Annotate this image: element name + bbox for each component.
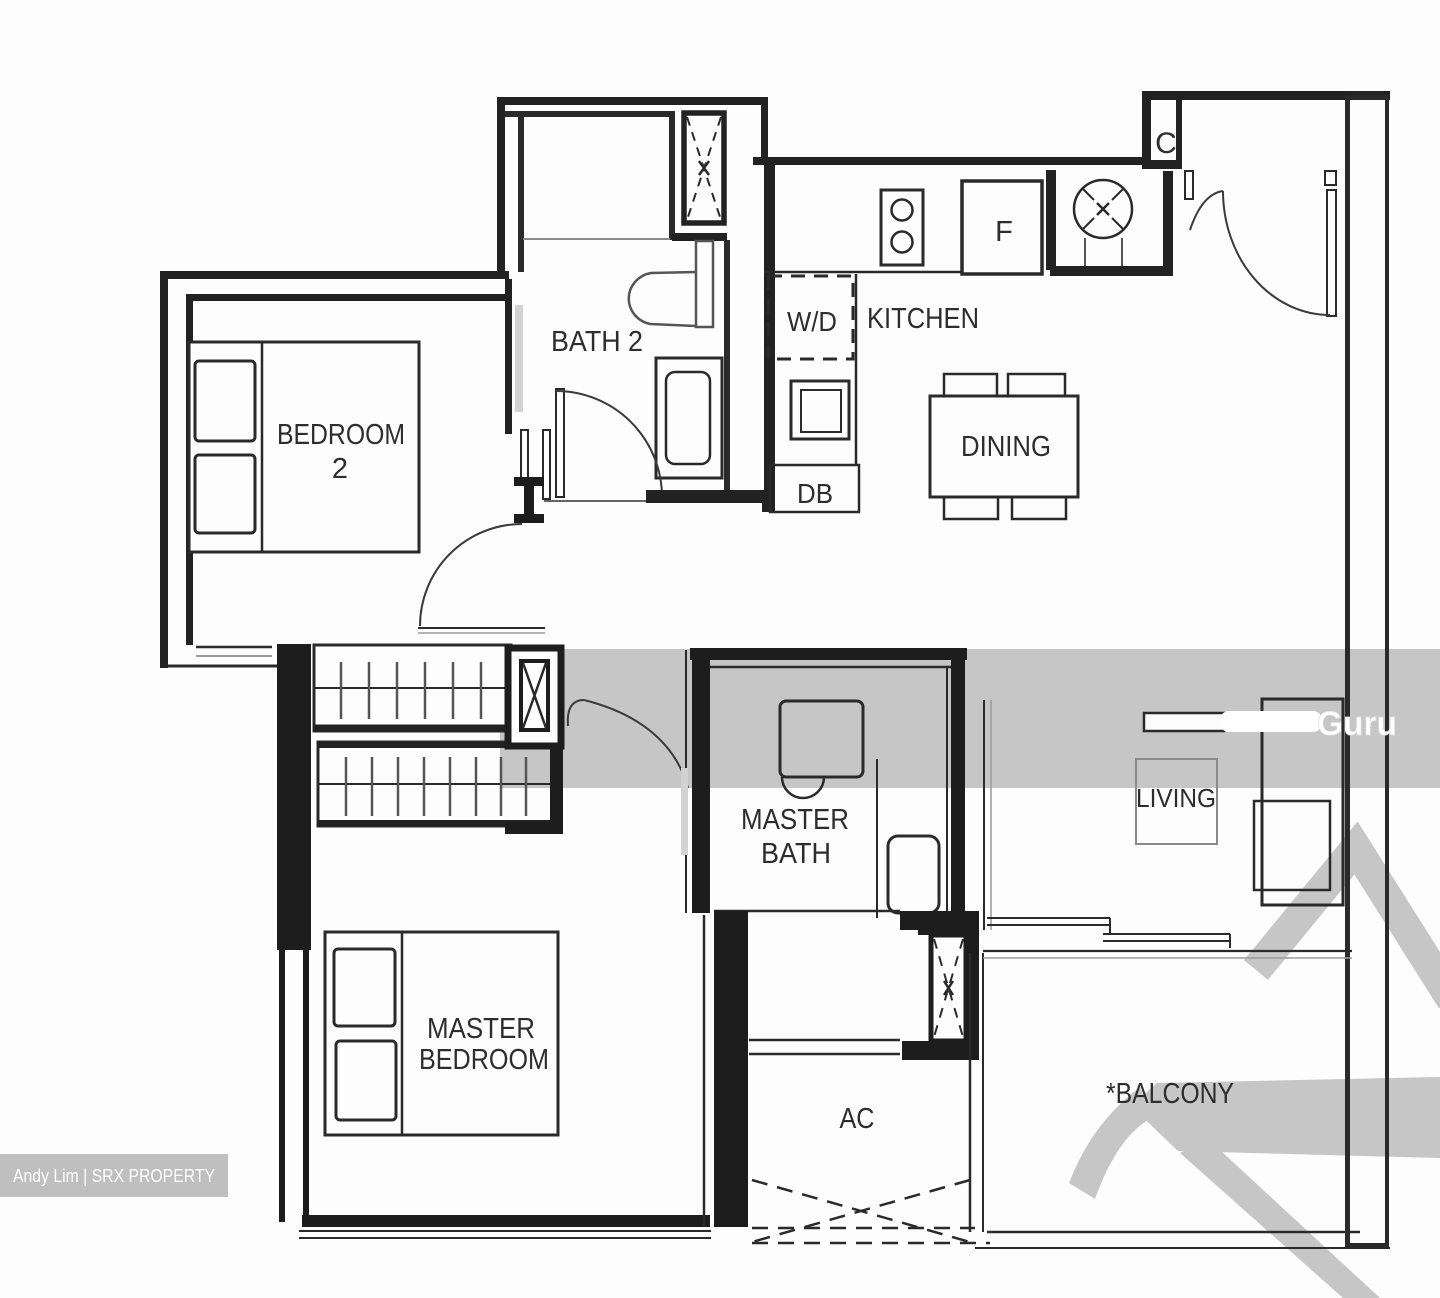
svg-text:W/D: W/D bbox=[787, 306, 837, 337]
svg-text:BATH 2: BATH 2 bbox=[551, 326, 643, 358]
svg-text:BATH: BATH bbox=[761, 838, 831, 870]
svg-text:Andy Lim | SRX PROPERTY: Andy Lim | SRX PROPERTY bbox=[13, 1166, 215, 1186]
svg-text:F: F bbox=[995, 216, 1013, 248]
svg-text:DINING: DINING bbox=[961, 431, 1051, 463]
svg-text:BEDROOM: BEDROOM bbox=[419, 1044, 549, 1076]
svg-text:KITCHEN: KITCHEN bbox=[867, 303, 979, 335]
svg-text:MASTER: MASTER bbox=[427, 1013, 535, 1045]
svg-text:BEDROOM: BEDROOM bbox=[277, 419, 405, 451]
svg-text:LIVING: LIVING bbox=[1136, 783, 1216, 813]
svg-text:*BALCONY: *BALCONY bbox=[1106, 1078, 1234, 1110]
svg-text:C: C bbox=[1155, 127, 1177, 160]
svg-text:Guru: Guru bbox=[1317, 705, 1397, 743]
svg-text:2: 2 bbox=[332, 453, 348, 485]
svg-text:AC: AC bbox=[840, 1103, 875, 1135]
svg-text:DB: DB bbox=[797, 478, 833, 509]
svg-text:MASTER: MASTER bbox=[741, 804, 849, 836]
